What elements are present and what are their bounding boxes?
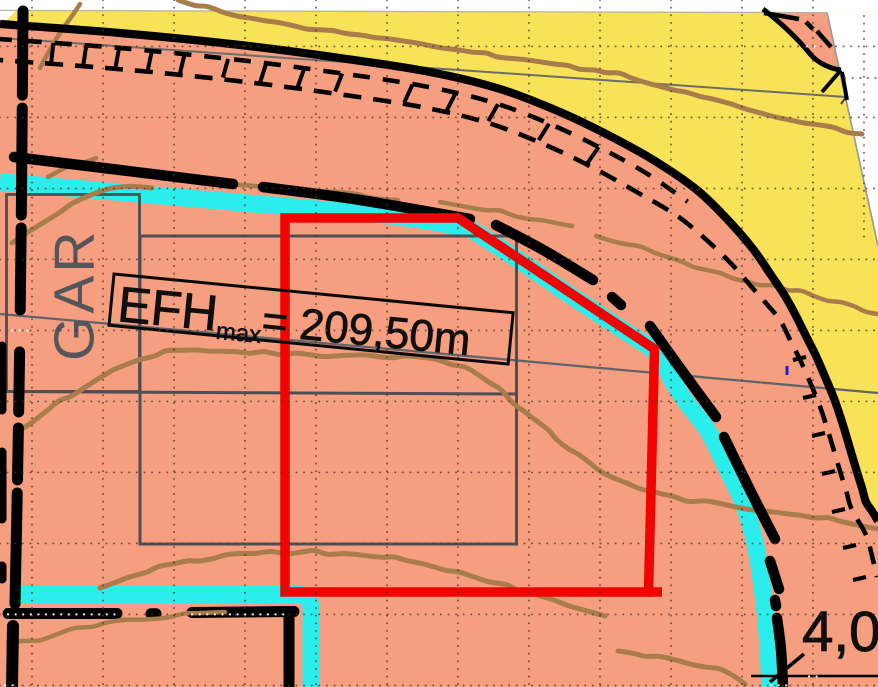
svg-text:max: max bbox=[215, 318, 263, 349]
svg-text:GAR: GAR bbox=[43, 228, 107, 361]
svg-text:EFH: EFH bbox=[115, 276, 220, 341]
